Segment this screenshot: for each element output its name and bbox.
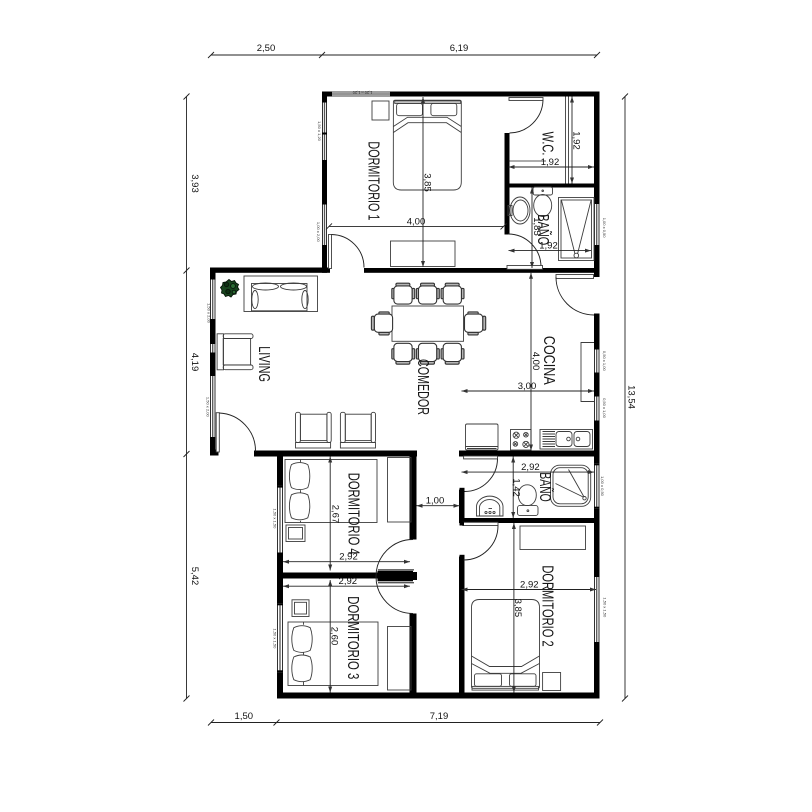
- svg-text:4,19: 4,19: [189, 353, 200, 372]
- svg-text:W.C.: W.C.: [539, 132, 556, 156]
- svg-text:1,00 x 0,50: 1,00 x 0,50: [600, 476, 605, 497]
- svg-text:DORMITORIO 1: DORMITORIO 1: [365, 141, 382, 220]
- svg-text:1,50: 1,50: [235, 711, 254, 722]
- svg-text:3,93: 3,93: [189, 174, 200, 193]
- svg-text:1,92: 1,92: [541, 157, 560, 168]
- svg-text:3,85: 3,85: [512, 599, 523, 618]
- svg-text:DORMITORIO 4: DORMITORIO 4: [345, 473, 362, 555]
- svg-text:7,19: 7,19: [430, 711, 449, 722]
- svg-text:1,50 x 1,50: 1,50 x 1,50: [272, 629, 277, 650]
- svg-text:2,67: 2,67: [330, 505, 341, 524]
- svg-text:LIVING: LIVING: [255, 346, 272, 382]
- svg-text:DORMITORIO 3: DORMITORIO 3: [344, 596, 361, 679]
- svg-text:6,19: 6,19: [450, 43, 469, 54]
- svg-text:4,00: 4,00: [530, 352, 541, 371]
- svg-text:1,92: 1,92: [571, 131, 582, 150]
- svg-text:1,50 x 1,20: 1,50 x 1,20: [317, 121, 322, 142]
- svg-text:BAÑO: BAÑO: [536, 472, 556, 502]
- svg-text:BAÑO: BAÑO: [534, 214, 554, 245]
- svg-text:1,50 x 2,00: 1,50 x 2,00: [207, 303, 212, 324]
- svg-text:1,50 x 2,00: 1,50 x 2,00: [205, 397, 210, 418]
- svg-text:1,42: 1,42: [511, 478, 522, 497]
- svg-text:2,60: 2,60: [329, 627, 340, 646]
- svg-text:1,00 x 2,00: 1,00 x 2,00: [316, 222, 321, 243]
- svg-text:1,50 x 1,50: 1,50 x 1,50: [603, 597, 608, 618]
- svg-text:2,92: 2,92: [520, 580, 539, 591]
- svg-text:2,92: 2,92: [339, 576, 358, 587]
- svg-text:2,50: 2,50: [257, 43, 276, 54]
- svg-text:3,85: 3,85: [422, 173, 433, 192]
- svg-text:5,42: 5,42: [189, 567, 200, 586]
- svg-text:0,50 x 1,00: 0,50 x 1,00: [602, 351, 607, 372]
- svg-text:1,00 x 0,50: 1,00 x 0,50: [602, 218, 607, 239]
- svg-text:0,50 x 1,00: 0,50 x 1,00: [602, 398, 607, 419]
- svg-text:1,20 x 1,20: 1,20 x 1,20: [352, 90, 373, 95]
- svg-text:1,50 x 1,50: 1,50 x 1,50: [272, 509, 277, 530]
- svg-text:COCINA: COCINA: [540, 336, 557, 385]
- svg-text:13,54: 13,54: [626, 385, 637, 409]
- svg-text:DORMITORIO 2: DORMITORIO 2: [539, 565, 556, 646]
- svg-text:3,00: 3,00: [518, 381, 537, 392]
- svg-text:4,00: 4,00: [407, 217, 426, 228]
- svg-text:COMEDOR: COMEDOR: [414, 359, 431, 415]
- svg-text:1,00: 1,00: [426, 496, 445, 507]
